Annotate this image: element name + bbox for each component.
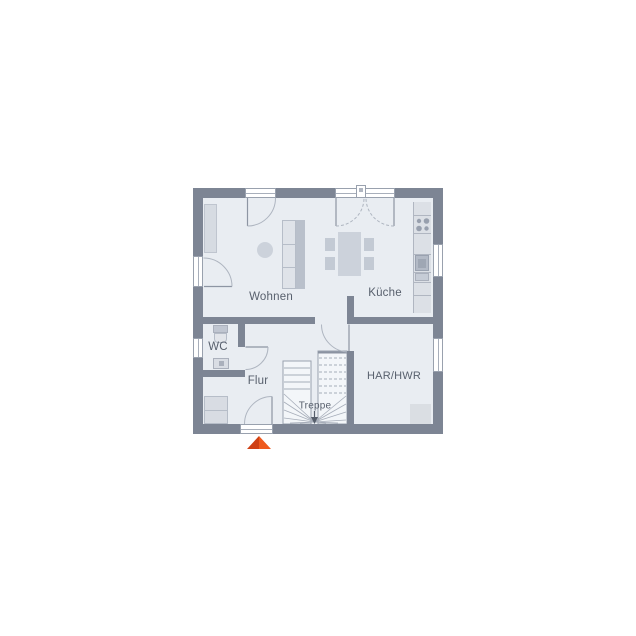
wall-exterior-bottom (193, 424, 443, 434)
entrance-marker-icon (247, 436, 271, 449)
room-label-kueche: Küche (368, 287, 402, 299)
wall-interior-kitchen-har (347, 317, 433, 324)
door-top-wohnen (245, 188, 276, 198)
wall-exterior-top (193, 188, 443, 198)
plan-vector-overlay (0, 0, 636, 636)
door-handle-icon (356, 185, 366, 198)
wall-interior-har-left (347, 351, 354, 424)
window-right-kueche (433, 244, 443, 277)
staircase (283, 351, 347, 424)
wall-interior-hall (203, 317, 315, 324)
floorplan-canvas: Wohnen Küche WC Flur Treppe HAR/HWR (0, 0, 636, 636)
room-label-har-hwr: HAR/HWR (367, 370, 421, 382)
stove-icon (416, 218, 429, 231)
room-label-flur: Flur (248, 375, 269, 387)
wall-interior-wc-bottom (203, 370, 245, 377)
window-right-har (433, 338, 443, 372)
room-label-wohnen: Wohnen (249, 291, 293, 303)
wall-exterior-right (433, 188, 443, 434)
room-label-wc: WC (208, 341, 228, 353)
wall-exterior-left (193, 188, 203, 434)
wall-interior-wc-right (238, 317, 245, 347)
window-left-wc (193, 338, 203, 358)
room-label-treppe: Treppe (299, 401, 332, 412)
entry-door-bottom (240, 424, 273, 434)
door-left-wohnen (193, 256, 203, 287)
